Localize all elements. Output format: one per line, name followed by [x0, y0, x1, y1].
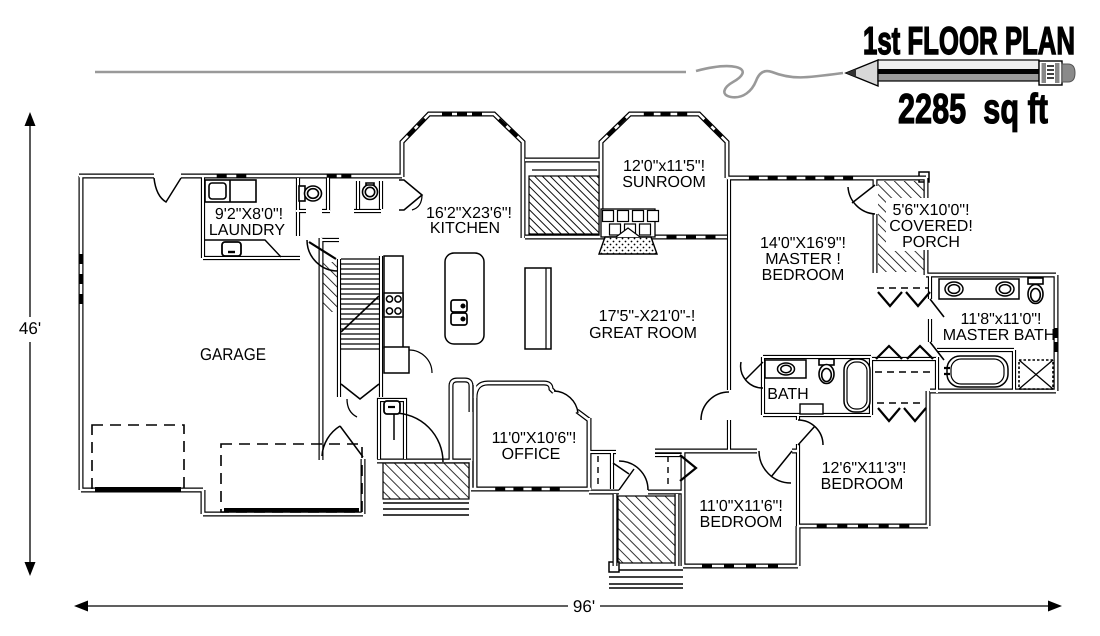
svg-text:GARAGE: GARAGE: [200, 345, 266, 364]
svg-text:COVERED!: COVERED!: [889, 218, 973, 235]
svg-text:12'6"X11'3"!: 12'6"X11'3"!: [822, 460, 907, 477]
svg-text:MASTER !: MASTER !: [765, 251, 841, 268]
svg-text:11'0"X11'6"!: 11'0"X11'6"!: [699, 498, 783, 515]
svg-text:9'2"X8'0"!: 9'2"X8'0"!: [215, 206, 283, 223]
svg-text:11'0"X10'6"!: 11'0"X10'6"!: [492, 430, 577, 447]
svg-text:1st FLOOR PLAN: 1st FLOOR PLAN: [863, 20, 1075, 63]
svg-text:2285 sq ft: 2285 sq ft: [898, 85, 1048, 132]
svg-text:PORCH: PORCH: [902, 234, 960, 251]
svg-text:46': 46': [19, 319, 41, 338]
svg-text:OFFICE: OFFICE: [502, 446, 561, 463]
svg-text:BEDROOM: BEDROOM: [700, 514, 783, 531]
svg-text:14'0"X16'9"!: 14'0"X16'9"!: [760, 235, 846, 252]
svg-text:BEDROOM: BEDROOM: [821, 476, 904, 493]
svg-text:MASTER BATH: MASTER BATH: [943, 327, 1056, 344]
svg-text:17'5"-X21'0"-!: 17'5"-X21'0"-!: [599, 308, 696, 325]
svg-text:5'6"X10'0"!: 5'6"X10'0"!: [892, 202, 969, 219]
svg-text:BEDROOM: BEDROOM: [762, 267, 845, 284]
svg-text:96': 96': [573, 597, 595, 616]
svg-text:12'0"x11'5"!: 12'0"x11'5"!: [623, 158, 705, 175]
svg-text:KITCHEN: KITCHEN: [430, 220, 500, 237]
svg-text:GREAT ROOM: GREAT ROOM: [589, 325, 697, 342]
svg-text:SUNROOM: SUNROOM: [622, 174, 706, 191]
svg-text:LAUNDRY: LAUNDRY: [209, 222, 286, 239]
svg-text:11'8"x11'0"!: 11'8"x11'0"!: [961, 311, 1042, 328]
svg-text:BATH: BATH: [767, 386, 808, 403]
